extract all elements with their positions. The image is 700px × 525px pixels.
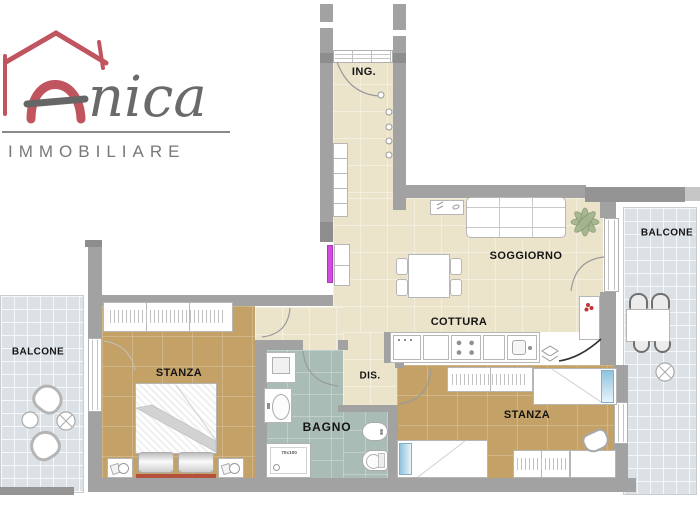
dishwasher-icon [542, 346, 558, 361]
brand-letter-a [31, 85, 81, 120]
wall-segment [88, 247, 102, 295]
entry-closet [333, 143, 348, 217]
logo-house-chimney [99, 42, 103, 68]
toilet [362, 450, 388, 471]
double-bed [135, 383, 217, 454]
wall-segment [88, 478, 636, 492]
floor-plan: 70x100 [0, 0, 700, 525]
dining-chair [396, 258, 408, 275]
wall-segment [320, 28, 333, 53]
wall-segment [393, 4, 406, 30]
dining-table [408, 254, 450, 298]
balcony-left-parapet [0, 487, 74, 495]
balcony-chair [651, 293, 670, 309]
room-label-kitchen: COTTURA [431, 316, 488, 328]
brand-letter-a-crossbar [27, 99, 85, 104]
room-label-living: SOGGIORNO [490, 250, 563, 262]
room-label-balcony-right: BALCONE [641, 228, 693, 239]
window-bedroom-left [88, 338, 102, 412]
nightstand [107, 458, 133, 478]
room-label-hallway: DIS. [359, 371, 380, 382]
window-corridor-left [320, 22, 333, 28]
kitchen-cabinet [423, 335, 449, 360]
wall-segment [320, 222, 333, 242]
wardrobe-low [513, 450, 570, 478]
bed-headboard [136, 474, 216, 478]
kitchen-counter [390, 332, 540, 363]
wall-segment [320, 4, 333, 22]
entry-door [333, 50, 393, 63]
balcony-door-living [604, 218, 619, 292]
wall-segment [600, 292, 616, 365]
wall-segment [614, 444, 628, 480]
wall-segment [585, 187, 685, 202]
wall-segment [320, 53, 333, 63]
dining-chair [396, 279, 408, 296]
bed-pillow-blue [399, 443, 412, 475]
wall-segment [255, 340, 303, 350]
desk [570, 450, 616, 478]
storage-cabinet [334, 244, 350, 286]
kitchen-sink [507, 335, 537, 360]
wall-segment [85, 240, 102, 247]
sofa [466, 197, 566, 238]
wall-segment [88, 412, 102, 478]
balcony-chair [629, 293, 648, 309]
wardrobe-bedroom-left [103, 302, 233, 332]
stove [451, 335, 481, 360]
bathroom-sink [264, 388, 292, 423]
wall-segment [88, 306, 102, 338]
window-bedroom-right [614, 402, 628, 444]
ac-unit-box [579, 296, 600, 340]
washing-machine [266, 352, 296, 383]
bed-pillow [178, 452, 214, 473]
kitchen-cabinet [483, 335, 505, 360]
room-label-bathroom: BAGNO [303, 420, 352, 434]
radiator [327, 245, 333, 283]
nightstand [218, 458, 244, 478]
brand-logo: nica IMMOBILIARE [2, 6, 238, 168]
wardrobe-bedroom-right [447, 367, 533, 392]
sliding-door-curve [559, 339, 601, 361]
room-label-entry: ING. [352, 66, 376, 78]
bed-pillow-blue [601, 370, 614, 403]
wall-segment [393, 36, 406, 53]
brand-name-script: nica [88, 65, 207, 130]
brand-subtitle: IMMOBILIARE [8, 142, 185, 161]
wall-segment [320, 63, 333, 222]
dining-chair [450, 279, 462, 296]
room-label-bedroom-left: STANZA [156, 367, 202, 379]
room-label-balcony-left: BALCONE [12, 347, 64, 358]
logo-house-roof [6, 33, 106, 63]
room-label-bedroom-right: STANZA [504, 409, 550, 421]
fridge [393, 335, 421, 360]
wall-segment [338, 340, 348, 350]
wall-segment [393, 53, 406, 63]
dining-chair [450, 258, 462, 275]
tv-unit [430, 200, 464, 215]
bidet [362, 422, 388, 441]
wall-segment [600, 202, 616, 218]
shower-tray: 70x100 [266, 443, 311, 478]
bed-pillow [138, 452, 174, 473]
balcony-table [626, 309, 670, 342]
window-corridor-right [393, 30, 406, 36]
wall-segment [685, 187, 700, 201]
shower-size-label: 70x100 [281, 451, 297, 456]
